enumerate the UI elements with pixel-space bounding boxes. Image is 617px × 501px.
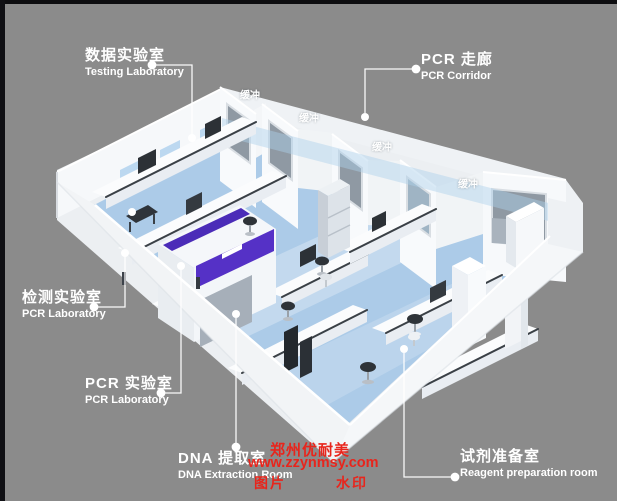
room-label-testing-laboratory: 数据实验室 Testing Laboratory [85, 48, 184, 78]
person-figure [196, 277, 200, 289]
watermark-website-url: www.zzynmsy.com [248, 455, 379, 471]
room-label-zh: 试剂准备室 [460, 449, 598, 465]
connector-pcr-corridor [365, 69, 412, 113]
image-border-left [0, 0, 5, 501]
buffer-room-tag: 缓冲 [372, 139, 392, 154]
equipment-rack [300, 336, 312, 378]
image-border-top [0, 0, 617, 4]
watermark-tag-image: 图片 [254, 473, 286, 493]
gray-cabinet [318, 179, 350, 258]
buffer-room-tag: 缓冲 [458, 176, 478, 191]
room-label-pcr-corridor: PCR 走廊 PCR Corridor [421, 52, 493, 82]
room-label-en: PCR Laboratory [22, 309, 106, 321]
lamp-ball [128, 208, 136, 216]
buffer-room-tag: 缓冲 [299, 110, 319, 125]
pcr-lab-floorplan-image: WM [0, 0, 617, 501]
buffer-room-tag: 缓冲 [240, 87, 260, 102]
room-label-en: Reagent preparation room [460, 468, 598, 480]
room-label-zh: PCR 走廊 [421, 52, 493, 68]
room-label-pcr-laboratory: PCR 实验室 PCR Laboratory [85, 376, 173, 406]
room-label-en: PCR Laboratory [85, 395, 173, 407]
watermark-tag-stamp: 水印 [336, 473, 368, 493]
room-label-reagent-preparation-room: 试剂准备室 Reagent preparation room [460, 449, 598, 479]
equipment-rack [284, 325, 298, 373]
room-label-zh: 数据实验室 [85, 48, 184, 64]
room-label-en: PCR Corridor [421, 71, 493, 83]
room-label-detection-laboratory: 检测实验室 PCR Laboratory [22, 290, 106, 320]
room-label-en: Testing Laboratory [85, 67, 184, 79]
room-label-zh: PCR 实验室 [85, 376, 173, 392]
room-label-zh: 检测实验室 [22, 290, 106, 306]
